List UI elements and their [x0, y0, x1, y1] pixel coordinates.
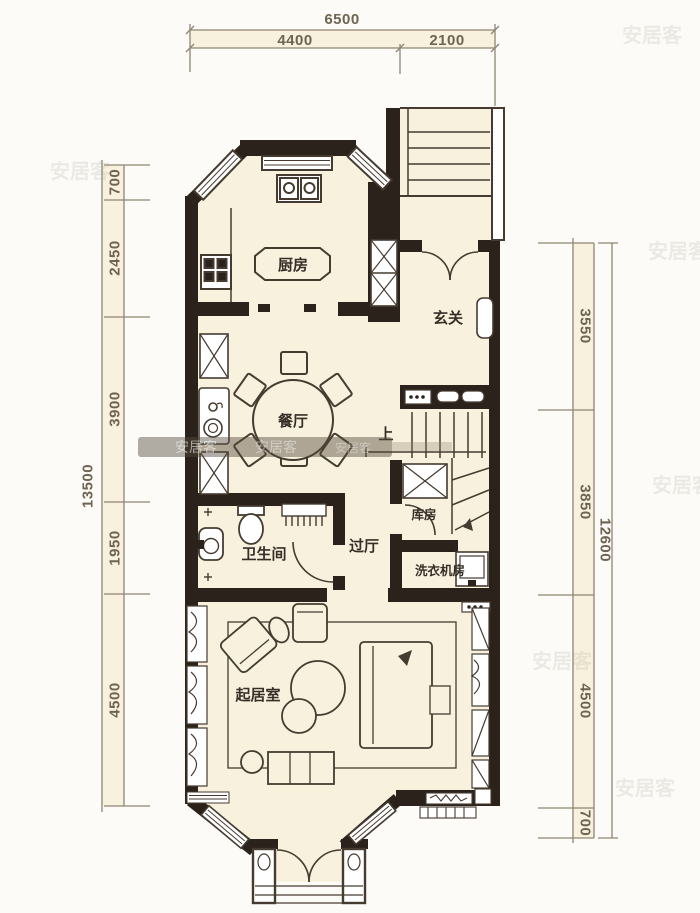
living-label: 起居室 — [234, 686, 280, 704]
door-jamb-tick — [258, 304, 270, 312]
porch-floor — [398, 108, 492, 242]
round-stool — [282, 699, 316, 733]
wall-bathroom-right-lower — [333, 576, 345, 590]
watermark-text: 安居客 — [255, 439, 297, 455]
stool — [241, 751, 263, 773]
floor-plan-svg: 6500 4400 2100 700 2450 3900 1950 4500 1… — [0, 0, 700, 913]
watermark-text: 安居客 — [648, 239, 700, 263]
wall-bathroom-right-upper — [333, 493, 345, 545]
left-wall-radiators — [187, 606, 207, 786]
porch-side-wall — [492, 108, 504, 240]
tv-console — [268, 752, 334, 784]
dim-right-seg-1: 3550 — [577, 308, 594, 343]
wall-hall-storage-upper — [390, 460, 402, 504]
kitchen-bay-window — [262, 156, 332, 170]
door-cap-left — [251, 839, 278, 849]
wall-living-top-left — [185, 588, 327, 602]
kitchen-label: 厨房 — [278, 256, 308, 274]
dim-top-seg-2: 2100 — [429, 32, 464, 49]
dim-left-seg-5: 4500 — [107, 682, 124, 717]
wall-kitchen-bottom-left — [185, 302, 249, 316]
dim-top-total: 6500 — [324, 11, 359, 28]
right-wall-windows — [472, 608, 489, 788]
watermark-text: 安居客 — [175, 439, 217, 455]
shoe-cabinet — [405, 390, 484, 404]
wall-living-top-right — [388, 588, 500, 602]
bottom-left-sill — [187, 792, 229, 803]
kitchen-stove — [201, 255, 231, 289]
toilet — [238, 506, 264, 544]
water-heater — [199, 388, 229, 444]
cabinet-x-box — [200, 452, 228, 494]
watermark-text: 安居客 — [615, 776, 676, 800]
kitchen-flue-cabinet — [371, 240, 397, 306]
wall-laundry-top — [402, 540, 458, 552]
watermark-text: 安居客 — [652, 473, 700, 497]
watermark-text: 安居客 — [532, 649, 593, 673]
dim-left-seg-3: 3900 — [107, 391, 124, 426]
bathroom-label: 卫生间 — [241, 545, 286, 563]
dim-right-seg-4: 700 — [577, 810, 594, 837]
dim-right-seg-2: 3850 — [577, 484, 594, 519]
watermark-text: 安居客 — [50, 159, 111, 183]
wall-bay-top — [240, 140, 356, 156]
dimensions-top: 6500 4400 2100 — [186, 11, 499, 106]
bottom-right-sill — [420, 807, 476, 818]
dim-left-total: 13500 — [80, 464, 97, 508]
kitchen-sink — [277, 175, 321, 202]
dining-chair — [281, 352, 307, 374]
watermark-text: 安居客 — [335, 440, 371, 455]
storage-label: 库房 — [411, 507, 436, 522]
dim-right-seg-3: 4500 — [577, 683, 594, 718]
foyer — [477, 298, 493, 338]
foyer-bench — [477, 298, 493, 338]
watermark-text: 安居客 — [622, 23, 683, 47]
door-jamb-tick — [304, 304, 316, 312]
wall-entry-jamb-right — [478, 240, 490, 252]
dim-top-seg-1: 4400 — [277, 32, 312, 49]
dim-left-seg-2: 2450 — [107, 240, 124, 275]
laundry-label: 洗衣机房 — [415, 563, 465, 578]
armchair — [293, 604, 327, 642]
floor-plan-image: 6500 4400 2100 700 2450 3900 1950 4500 1… — [0, 0, 700, 913]
cabinet-x-box — [200, 334, 228, 378]
hall-label: 过厅 — [349, 537, 379, 555]
dining-label: 餐厅 — [278, 412, 308, 430]
wall-porch-left — [386, 108, 400, 184]
utility-column — [199, 334, 229, 494]
dim-right-total: 12600 — [597, 518, 614, 562]
dim-left-seg-4: 1950 — [107, 530, 124, 565]
bathroom-sink — [197, 528, 223, 560]
foyer-label: 玄关 — [433, 309, 463, 327]
wall-entry-jamb-left — [400, 240, 422, 252]
